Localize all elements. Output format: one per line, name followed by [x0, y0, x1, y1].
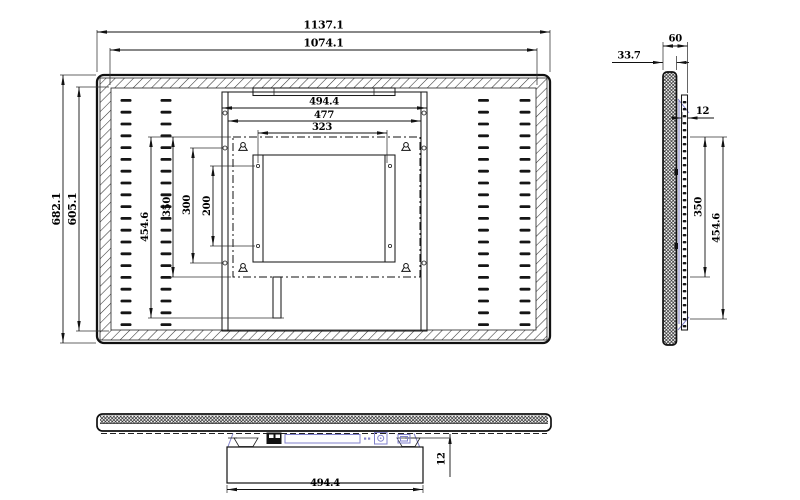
dim-bracket-width: 494.4	[310, 478, 340, 489]
dim-panel-depth: 33.7	[617, 51, 640, 62]
terminal-strip	[285, 435, 360, 444]
io-port	[398, 435, 410, 444]
dim-front-visible-height: 605.1	[66, 193, 79, 226]
dim-front-visible-width: 1074.1	[303, 37, 343, 50]
dim-bracket-offset: 12	[437, 452, 448, 466]
dim-front-overall-width: 1137.1	[303, 19, 343, 32]
dim-front-overall-height: 682.1	[50, 193, 63, 226]
dim-total-depth: 60	[669, 34, 683, 45]
dim-front-plate-height: 350	[162, 197, 173, 217]
dim-hole-span-height: 200	[202, 196, 213, 216]
technical-drawing-page: 1137.1 1074.1 494.4 477 323 682.1 605.1 …	[0, 0, 800, 500]
side-view: 60 33.7 12 350 454.6	[612, 34, 727, 346]
front-view: 1137.1 1074.1 494.4 477 323 682.1 605.1 …	[50, 19, 550, 344]
bottom-panel-hatch	[100, 416, 548, 424]
dim-rail-height: 300	[182, 195, 193, 215]
bracket-foot-left	[234, 438, 258, 447]
dim-side-bracket-height: 454.6	[712, 213, 723, 243]
cad-drawing: 1137.1 1074.1 494.4 477 323 682.1 605.1 …	[0, 0, 800, 500]
dim-hole-span-width: 323	[312, 122, 332, 133]
dim-side-plate-height: 350	[694, 197, 705, 217]
dim-plate-width: 494.4	[309, 97, 339, 108]
side-vent-slots	[683, 101, 687, 327]
dim-plate-thickness: 12	[696, 106, 710, 117]
power-connector	[267, 433, 282, 445]
side-panel-profile	[663, 72, 677, 345]
dim-front-bracket-height: 454.6	[140, 212, 151, 242]
bottom-view: 494.4 12	[97, 414, 551, 493]
dim-rail-width: 477	[314, 110, 334, 121]
io-connectors	[267, 433, 411, 445]
